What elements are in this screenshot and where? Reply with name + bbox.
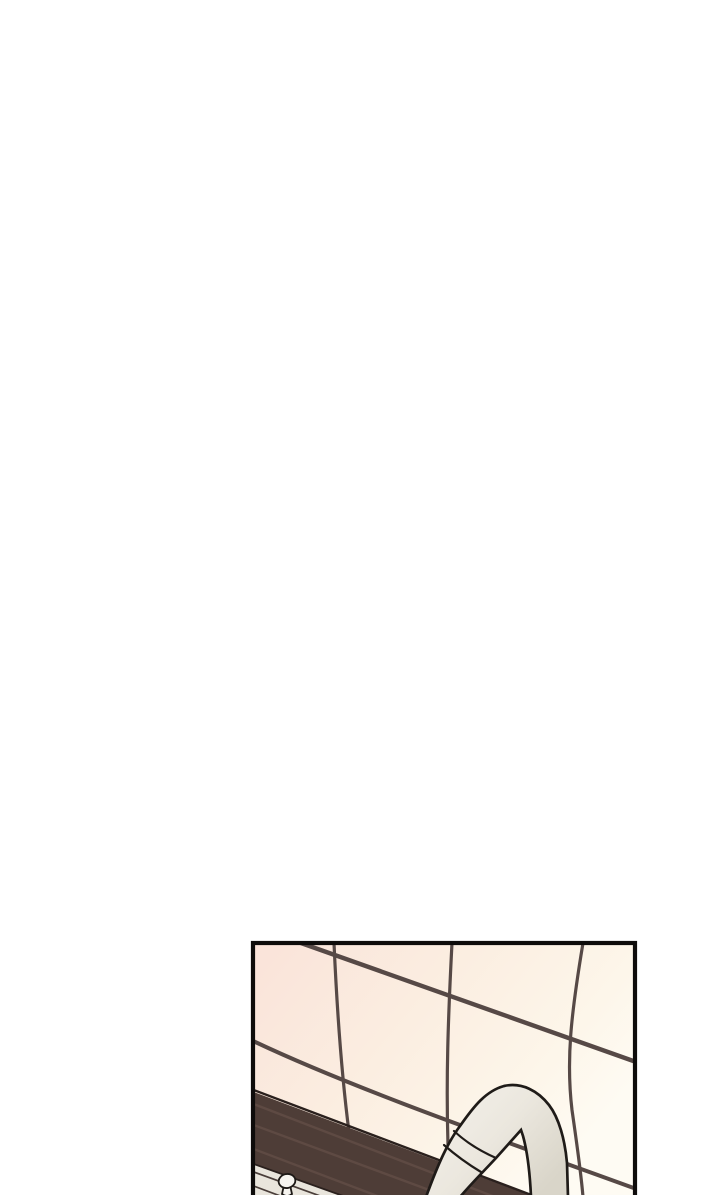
- webtoon-page-canvas: [0, 0, 720, 1195]
- webtoon-page: [0, 0, 720, 1195]
- comic-panel: [251, 943, 639, 1195]
